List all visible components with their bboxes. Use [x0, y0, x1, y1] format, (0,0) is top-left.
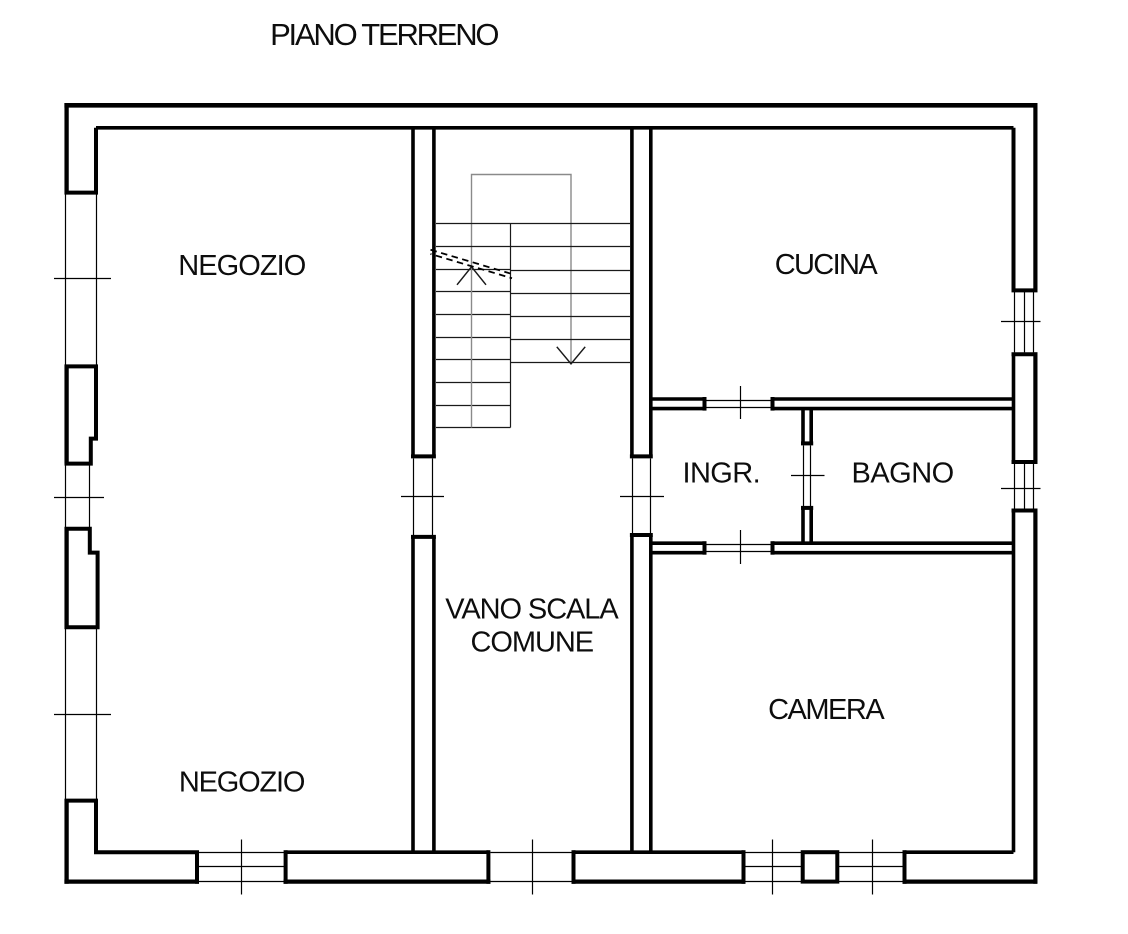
svg-text:BAGNO: BAGNO	[852, 458, 954, 490]
svg-text:INGR.: INGR.	[683, 458, 761, 490]
svg-text:VANO SCALA: VANO SCALA	[445, 594, 619, 626]
svg-text:COMUNE: COMUNE	[471, 626, 594, 658]
svg-text:NEGOZIO: NEGOZIO	[179, 767, 305, 799]
svg-text:PIANO TERRENO: PIANO TERRENO	[270, 17, 498, 52]
svg-text:CAMERA: CAMERA	[768, 694, 885, 726]
svg-text:NEGOZIO: NEGOZIO	[178, 250, 305, 282]
svg-text:CUCINA: CUCINA	[775, 249, 879, 281]
